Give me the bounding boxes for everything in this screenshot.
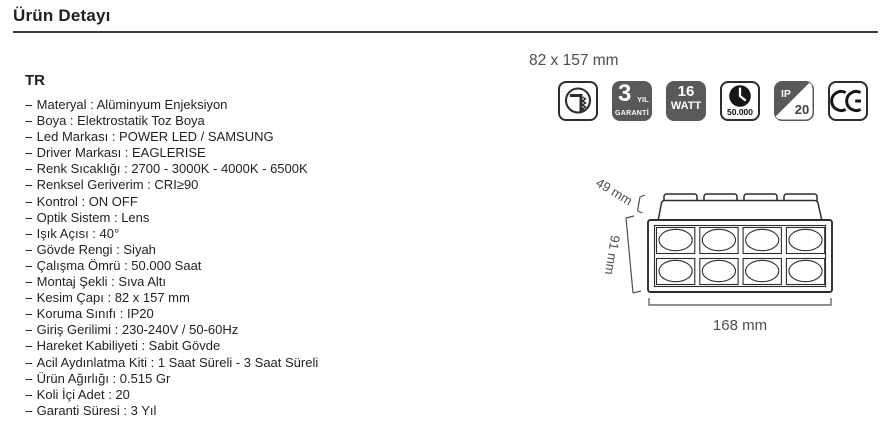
depth-dimension-line [638, 195, 646, 213]
spec-text: Işık Açısı : 40° [37, 226, 120, 241]
ip-rating-glyph: IP 20 [774, 81, 814, 121]
ip-rating-value: 20 [795, 102, 809, 117]
recessed-mount-glyph [560, 83, 596, 119]
spec-text: Acil Aydınlatma Kiti : 1 Saat Süreli - 3… [37, 355, 319, 370]
spec-text: Giriş Gerilimi : 230-240V / 50-60Hz [37, 322, 239, 337]
spec-text: Ürün Ağırlığı : 0.515 Gr [37, 371, 171, 386]
spec-bullet: -- [25, 322, 32, 337]
spec-item: --Garanti Süresi : 3 Yıl [25, 403, 318, 419]
spec-text: Garanti Süresi : 3 Yıl [37, 403, 157, 418]
ce-mark-glyph [830, 83, 866, 119]
height-dimension-label: 91 mm [602, 234, 623, 276]
spec-text: Renksel Geriverim : CRI≥90 [37, 177, 199, 192]
spec-text: Koruma Sınıfı : IP20 [37, 306, 154, 321]
spec-text: Renk Sıcaklığı : 2700 - 3000K - 4000K - … [37, 161, 308, 176]
wattage-unit: WATT [666, 100, 706, 112]
spec-bullet: -- [25, 177, 32, 192]
spec-text: Driver Markası : EAGLERISE [37, 145, 206, 160]
certification-badge-row: 3 YIL GARANTİ 16 WATT 50.000 I [558, 81, 868, 121]
page-title: Ürün Detayı [13, 6, 111, 26]
spec-bullet: -- [25, 97, 32, 112]
spec-item: --Driver Markası : EAGLERISE [25, 145, 318, 161]
ip-prefix: IP [781, 88, 791, 100]
product-detail-page: Ürün Detayı TR --Materyal : Alüminyum En… [0, 0, 890, 444]
spec-bullet: -- [25, 129, 32, 144]
spec-text: Optik Sistem : Lens [37, 210, 150, 225]
lifetime-badge: 50.000 [720, 81, 760, 121]
spec-item: --Boya : Elektrostatik Toz Boya [25, 113, 318, 129]
spec-item: --Hareket Kabiliyeti : Sabit Gövde [25, 338, 318, 354]
spec-bullet: -- [25, 242, 32, 257]
spec-item: --Kontrol : ON OFF [25, 194, 318, 210]
spec-item: --Gövde Rengi : Siyah [25, 242, 318, 258]
spec-bullet: -- [25, 194, 32, 209]
spec-item: --Optik Sistem : Lens [25, 210, 318, 226]
warranty-unit: YIL [637, 95, 649, 104]
spec-text: Kontrol : ON OFF [37, 194, 138, 209]
cutout-dimension-label: 82 x 157 mm [529, 52, 619, 70]
spec-item: --Materyal : Alüminyum Enjeksiyon [25, 97, 318, 113]
spec-text: Materyal : Alüminyum Enjeksiyon [37, 97, 228, 112]
spec-item: --Led Markası : POWER LED / SAMSUNG [25, 129, 318, 145]
spec-text: Kesim Çapı : 82 x 157 mm [37, 290, 190, 305]
spec-item: --Koli İçi Adet : 20 [25, 387, 318, 403]
technical-drawing: 49 mm 91 mm 168 mm [588, 174, 890, 346]
spec-bullet: -- [25, 371, 32, 386]
spec-item: --Renksel Geriverim : CRI≥90 [25, 177, 318, 193]
spec-bullet: -- [25, 338, 32, 353]
depth-dimension-label: 49 mm [593, 175, 635, 208]
spec-item: --Giriş Gerilimi : 230-240V / 50-60Hz [25, 322, 318, 338]
lifetime-hours: 50.000 [722, 107, 758, 117]
spec-text: Hareket Kabiliyeti : Sabit Gövde [37, 338, 221, 353]
spec-item: --Işık Açısı : 40° [25, 226, 318, 242]
spec-list: --Materyal : Alüminyum Enjeksiyon --Boya… [25, 97, 318, 419]
spec-bullet: -- [25, 210, 32, 225]
spec-bullet: -- [25, 403, 32, 418]
spec-bullet: -- [25, 145, 32, 160]
spec-item: --Montaj Şekli : Sıva Altı [25, 274, 318, 290]
spec-bullet: -- [25, 387, 32, 402]
spec-item: --Çalışma Ömrü : 50.000 Saat [25, 258, 318, 274]
warranty-badge: 3 YIL GARANTİ [612, 81, 652, 121]
spec-text: Koli İçi Adet : 20 [37, 387, 130, 402]
spec-text: Çalışma Ömrü : 50.000 Saat [37, 258, 202, 273]
spec-text: Boya : Elektrostatik Toz Boya [37, 113, 205, 128]
spec-bullet: -- [25, 355, 32, 370]
width-dimension-line [649, 298, 831, 305]
spec-item: --Kesim Çapı : 82 x 157 mm [25, 290, 318, 306]
spec-item: --Acil Aydınlatma Kiti : 1 Saat Süreli -… [25, 355, 318, 371]
spec-text: Led Markası : POWER LED / SAMSUNG [37, 129, 274, 144]
width-dimension-label: 168 mm [713, 317, 767, 334]
clock-icon [722, 83, 758, 109]
language-label: TR [25, 72, 45, 89]
spec-bullet: -- [25, 226, 32, 241]
spec-bullet: -- [25, 274, 32, 289]
wattage-badge: 16 WATT [666, 81, 706, 121]
spec-item: --Koruma Sınıfı : IP20 [25, 306, 318, 322]
spec-bullet: -- [25, 113, 32, 128]
wattage-value: 16 [666, 84, 706, 99]
spec-item: --Renk Sıcaklığı : 2700 - 3000K - 4000K … [25, 161, 318, 177]
warranty-years: 3 [618, 82, 631, 106]
recessed-mount-icon [558, 81, 598, 121]
spec-bullet: -- [25, 290, 32, 305]
spec-text: Montaj Şekli : Sıva Altı [37, 274, 166, 289]
ce-mark-icon [828, 81, 868, 121]
spec-text: Gövde Rengi : Siyah [37, 242, 156, 257]
warranty-word: GARANTİ [612, 110, 652, 117]
title-divider [13, 31, 878, 33]
height-dimension-line [626, 216, 641, 293]
ip-rating-badge: IP 20 [774, 81, 814, 121]
spec-item: --Ürün Ağırlığı : 0.515 Gr [25, 371, 318, 387]
spec-bullet: -- [25, 258, 32, 273]
spec-bullet: -- [25, 161, 32, 176]
spec-bullet: -- [25, 306, 32, 321]
fixture-housing [658, 201, 822, 222]
